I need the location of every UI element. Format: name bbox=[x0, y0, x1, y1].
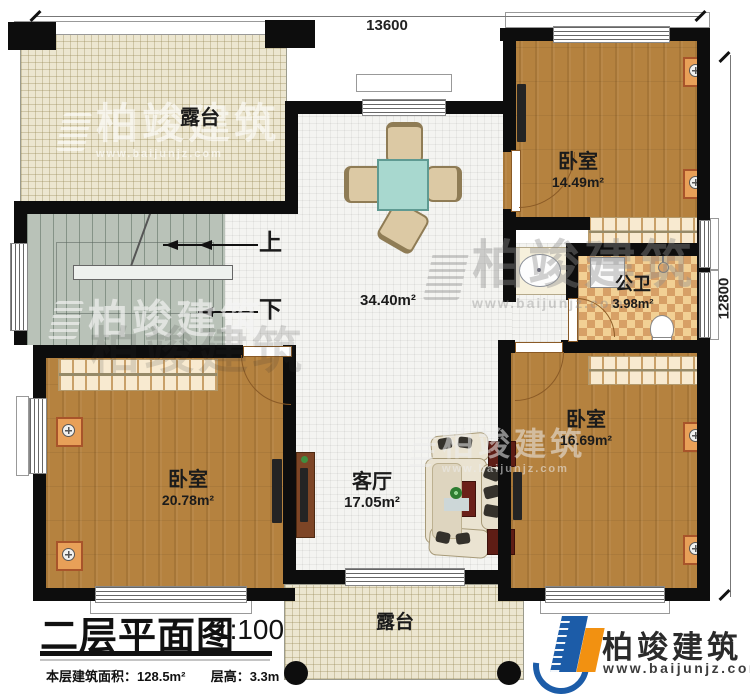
living-room-area: 17.05m² bbox=[330, 494, 414, 512]
dining-chair bbox=[386, 122, 423, 164]
stair-down-label: 下 bbox=[259, 296, 282, 324]
tv-living bbox=[300, 468, 308, 522]
wall-mid-horizontal-right bbox=[561, 340, 710, 353]
wall-below-top-terrace bbox=[14, 201, 298, 214]
wall-bedroom-bl-top bbox=[33, 345, 243, 358]
floor-area-value: 128.5m² bbox=[137, 669, 185, 684]
wall-bedroom-br-left bbox=[498, 340, 511, 601]
wall-terrace-hall-divider bbox=[285, 101, 298, 214]
tv-bedroom-tr bbox=[517, 84, 526, 142]
window-right-closet bbox=[699, 220, 711, 268]
nightstand bbox=[56, 541, 83, 571]
right-dimension-label: 12800 bbox=[716, 271, 733, 327]
living-room-name: 客厅 bbox=[330, 470, 414, 494]
bedroom-bl-name: 卧室 bbox=[146, 468, 230, 492]
bedroom-tr-name: 卧室 bbox=[538, 150, 618, 174]
wall-living-bottom-left bbox=[285, 570, 345, 584]
logo-website: www.baijunjz.com bbox=[603, 660, 750, 676]
wall-bedroom-tr-left bbox=[503, 28, 516, 152]
stair-up-arrowhead bbox=[199, 240, 212, 250]
wall-bathroom-top bbox=[576, 243, 710, 256]
nightstand bbox=[56, 417, 83, 447]
sink-drain bbox=[537, 268, 541, 272]
floor-height-label: 层高： bbox=[211, 669, 250, 684]
column-top-mid bbox=[265, 20, 315, 48]
window-bathroom-right bbox=[699, 272, 711, 338]
plant-icon bbox=[450, 487, 462, 499]
terrace-top-floor bbox=[20, 29, 287, 204]
dim-tick bbox=[718, 51, 730, 63]
floor-height-value: 3.3m bbox=[250, 669, 280, 684]
tv-bedroom-bl bbox=[272, 459, 282, 523]
lamp-icon bbox=[62, 548, 75, 561]
bedroom-tr-area: 14.49m² bbox=[538, 174, 618, 191]
bedroom-br-name: 卧室 bbox=[544, 408, 628, 432]
coffee-table-glass bbox=[444, 498, 469, 511]
wall-bedroom-tr-bottom bbox=[503, 217, 590, 230]
window-hall-top bbox=[362, 99, 446, 116]
window-stairs-left bbox=[10, 243, 28, 331]
column-terrace-left bbox=[284, 661, 308, 685]
hall-area-label: 34.40m² bbox=[360, 292, 416, 310]
bedroom-br-area: 16.69m² bbox=[544, 432, 628, 449]
sill-hall-top bbox=[356, 74, 452, 92]
stair-up-arrowhead bbox=[165, 240, 178, 250]
window-bedroom-bl-bottom bbox=[95, 586, 247, 603]
window-bedroom-bl-left bbox=[29, 398, 47, 474]
bathroom-name: 公卫 bbox=[600, 274, 666, 296]
dim-tick bbox=[718, 589, 730, 601]
stair-up-label: 上 bbox=[259, 229, 282, 257]
wall-hall-top-right bbox=[444, 101, 504, 114]
bathroom-area: 3.98m² bbox=[600, 296, 666, 312]
top-dimension-label: 13600 bbox=[352, 17, 422, 34]
dining-chair bbox=[426, 166, 462, 202]
bedroom-tr-label: 卧室 14.49m² bbox=[538, 150, 618, 191]
wall-bathroom-left bbox=[566, 243, 578, 300]
living-room-label: 客厅 17.05m² bbox=[330, 470, 414, 512]
title-rule-thick bbox=[40, 651, 272, 656]
floor-area-label: 本层建筑面积： bbox=[46, 669, 137, 684]
floor-plan: 13600 12800 bbox=[0, 0, 750, 694]
wall-living-bottom-right bbox=[463, 570, 511, 584]
closet-bottom-right bbox=[588, 356, 698, 385]
lamp-icon bbox=[62, 424, 75, 437]
bedroom-bl-area: 20.78m² bbox=[146, 492, 230, 509]
sill-bedroom-bl-left bbox=[16, 396, 29, 476]
terrace-top-label: 露台 bbox=[180, 106, 220, 130]
plan-scale: 1:100 bbox=[214, 614, 284, 646]
tv-bedroom-br bbox=[513, 472, 522, 520]
title-info-line: 本层建筑面积：128.5m² 层高：3.3m bbox=[46, 666, 279, 685]
closet-bottom-left bbox=[58, 359, 218, 391]
wall-hook-icon bbox=[658, 262, 669, 273]
bedroom-bl-label: 卧室 20.78m² bbox=[146, 468, 230, 509]
sofa-pillow bbox=[455, 532, 470, 545]
column-terrace-right bbox=[497, 661, 521, 685]
washer-panel bbox=[591, 258, 624, 265]
window-bedroom-tr-top bbox=[553, 26, 670, 43]
stair-down-arrowhead bbox=[200, 307, 213, 317]
title-rule-thin bbox=[40, 659, 270, 661]
stair-handrail bbox=[73, 265, 233, 280]
dining-table bbox=[377, 159, 429, 211]
window-living-slider bbox=[345, 568, 465, 586]
bedroom-br-label: 卧室 16.69m² bbox=[544, 408, 628, 449]
terrace-bottom-label: 露台 bbox=[376, 612, 414, 635]
bathroom-label: 公卫 3.98m² bbox=[600, 274, 666, 311]
window-bedroom-br-bottom bbox=[545, 586, 665, 603]
wall-hall-top-left bbox=[298, 101, 362, 114]
sofa-pillow bbox=[457, 436, 472, 449]
column-top-left bbox=[8, 22, 56, 50]
plant-on-cabinet bbox=[301, 456, 308, 463]
sill-right-closet bbox=[710, 218, 719, 270]
